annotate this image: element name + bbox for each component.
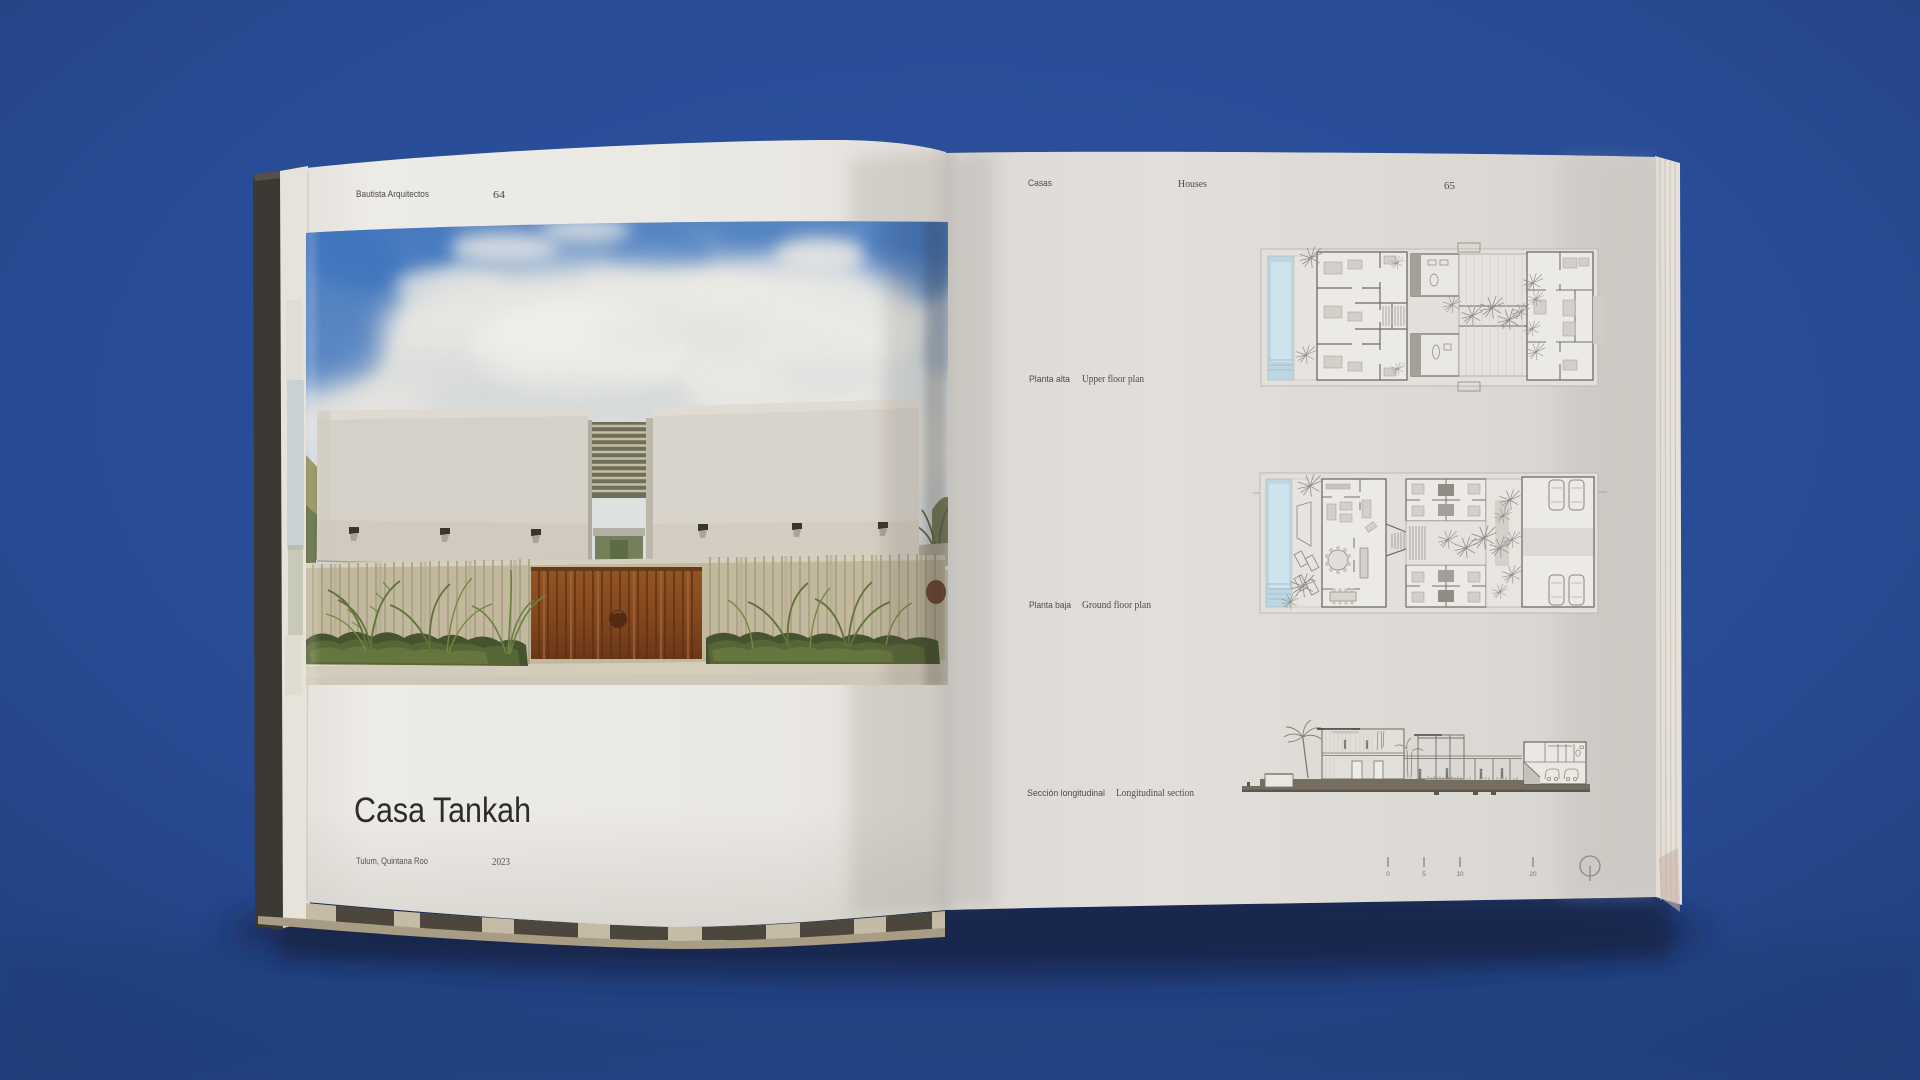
svg-text:65: 65 (1444, 180, 1456, 192)
svg-text:Planta alta: Planta alta (1029, 374, 1071, 385)
svg-text:Tulum, Quintana Roo: Tulum, Quintana Roo (356, 856, 428, 867)
svg-text:5: 5 (1422, 871, 1426, 878)
svg-text:Upper floor plan: Upper floor plan (1082, 374, 1145, 385)
svg-text:Casa Tankah: Casa Tankah (354, 791, 531, 830)
svg-text:Bautista Arquitectos: Bautista Arquitectos (356, 189, 429, 200)
svg-text:20: 20 (1529, 871, 1537, 878)
svg-text:Houses: Houses (1178, 179, 1207, 190)
svg-text:0: 0 (1386, 871, 1390, 878)
svg-text:Longitudinal section: Longitudinal section (1116, 788, 1195, 799)
svg-text:Sección longitudinal: Sección longitudinal (1027, 788, 1105, 799)
svg-text:Casas: Casas (1028, 178, 1052, 189)
svg-text:Ground floor plan: Ground floor plan (1082, 600, 1152, 611)
svg-text:2023: 2023 (492, 857, 510, 868)
svg-text:Planta baja: Planta baja (1029, 600, 1072, 611)
svg-text:10: 10 (1456, 871, 1464, 878)
svg-text:64: 64 (493, 189, 506, 201)
